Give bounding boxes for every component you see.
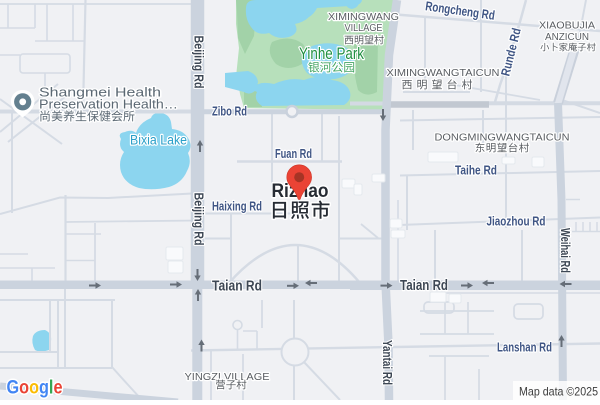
svg-text:Taihe Rd: Taihe Rd xyxy=(455,163,497,178)
svg-text:Lanshan Rd: Lanshan Rd xyxy=(497,340,552,355)
svg-text:Taian Rd: Taian Rd xyxy=(212,279,262,295)
svg-text:Haixing Rd: Haixing Rd xyxy=(212,199,262,214)
svg-text:Zibo Rd: Zibo Rd xyxy=(212,104,247,119)
svg-text:ANZICUN: ANZICUN xyxy=(545,31,589,43)
svg-text:Fuan Rd: Fuan Rd xyxy=(275,146,312,161)
svg-text:DONGMINGWANGTAICUN: DONGMINGWANGTAICUN xyxy=(435,132,570,144)
svg-text:Beijing Rd: Beijing Rd xyxy=(192,36,206,89)
svg-text:VILLAGE: VILLAGE xyxy=(345,22,383,34)
svg-text:Yantai Rd: Yantai Rd xyxy=(380,340,394,385)
svg-text:Weihai Rd: Weihai Rd xyxy=(558,228,572,273)
svg-text:Jiaozhou Rd: Jiaozhou Rd xyxy=(487,213,546,228)
svg-text:Google: Google xyxy=(7,377,63,398)
svg-text:XIAOBUJIA: XIAOBUJIA xyxy=(539,20,595,32)
svg-text:Taian Rd: Taian Rd xyxy=(400,278,448,294)
svg-text:Map data ©2025: Map data ©2025 xyxy=(519,385,598,399)
svg-text:Yinhe Park: Yinhe Park xyxy=(299,45,365,63)
svg-text:Beijing Rd: Beijing Rd xyxy=(192,193,206,246)
svg-text:Bixia Lake: Bixia Lake xyxy=(130,133,187,148)
svg-text:XIMINGWANGTAICUN: XIMINGWANGTAICUN xyxy=(387,67,500,79)
